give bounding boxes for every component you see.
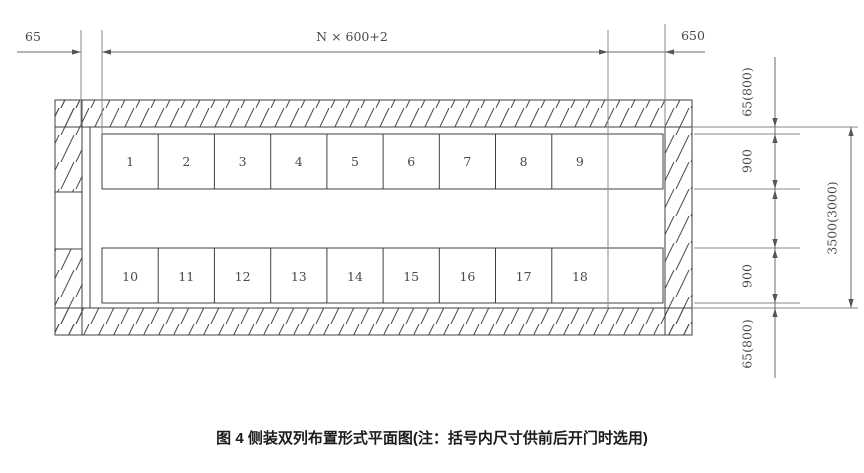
cabinet-cell-label: 15 (403, 269, 419, 284)
figure-canvas: 123456789 101112131415161718 65 N × 600+… (0, 0, 864, 473)
cabinet-row-1: 123456789 (102, 134, 663, 189)
arrow-up-134 (772, 134, 777, 143)
top-dimension-chain: 65 N × 600+2 650 (17, 24, 705, 308)
cabinet-cell-label: 14 (347, 269, 363, 284)
cabinet-cell-label: 1 (126, 154, 134, 169)
arrow-up-308 (772, 308, 777, 317)
arrow-down-248 (772, 239, 777, 248)
right-wall (665, 127, 692, 335)
cabinet-cell-label: 13 (291, 269, 307, 284)
row2-cell-labels: 101112131415161718 (122, 269, 588, 284)
top-wall (55, 100, 692, 127)
cabinet-cell-label: 9 (576, 154, 584, 169)
cabinet-cell-label: 7 (463, 154, 471, 169)
cabinet-cell-label: 8 (520, 154, 528, 169)
cabinet-cell-label: 6 (407, 154, 415, 169)
arrow-up-190 (772, 190, 777, 199)
dim-label-overall: 3500(3000) (825, 181, 840, 254)
arrow-down-127 (772, 118, 777, 127)
cabinet-cell-label: 2 (182, 154, 190, 169)
bottom-wall (55, 308, 692, 335)
arrow-down-overall (848, 299, 853, 308)
cabinet-cell-label: 4 (295, 154, 303, 169)
cabinet-cell-label: 18 (572, 269, 588, 284)
row2-dividers (158, 248, 608, 303)
dim-label-650: 650 (681, 28, 705, 43)
arrow-right-at-81 (72, 49, 81, 54)
right-dimension-column: 65(800) 900 900 65(800) (740, 57, 778, 378)
cabinet-row-2: 101112131415161718 (102, 248, 663, 303)
row1-dividers (158, 134, 608, 189)
left-wall-upper (55, 100, 82, 192)
cabinet-cell-label: 3 (239, 154, 247, 169)
left-wall-lower (55, 249, 82, 335)
arrow-down-303 (772, 294, 777, 303)
dim-label-row1-depth: 900 (740, 149, 755, 173)
dim-label-bottom-clearance: 65(800) (740, 319, 755, 369)
cabinet-cell-label: 16 (459, 269, 475, 284)
arrow-left-at-665 (665, 49, 674, 54)
row1-cell-labels: 123456789 (126, 154, 584, 169)
figure-caption: 图 4 侧装双列布置形式平面图(注：括号内尺寸供前后开门时选用) (0, 427, 864, 448)
cabinet-cell-label: 17 (516, 269, 532, 284)
left-wall-door-gap (55, 192, 82, 249)
arrow-down-189 (772, 180, 777, 189)
dim-label-65: 65 (25, 29, 41, 44)
cabinet-cell-label: 5 (351, 154, 359, 169)
plan-drawing: 123456789 101112131415161718 65 N × 600+… (0, 0, 864, 473)
overall-dimension: 3500(3000) (825, 127, 854, 308)
arrow-left-at-102 (102, 49, 111, 54)
arrow-up-249 (772, 249, 777, 258)
dim-label-top-clearance: 65(800) (740, 67, 755, 117)
cabinet-cell-label: 10 (122, 269, 138, 284)
dim-label-span: N × 600+2 (316, 29, 388, 44)
arrow-up-overall (848, 127, 853, 136)
cabinet-cell-label: 11 (178, 269, 194, 284)
room-walls (55, 100, 692, 335)
arrow-right-at-608 (599, 49, 608, 54)
dim-label-row2-depth: 900 (740, 264, 755, 288)
cabinet-cell-label: 12 (235, 269, 251, 284)
